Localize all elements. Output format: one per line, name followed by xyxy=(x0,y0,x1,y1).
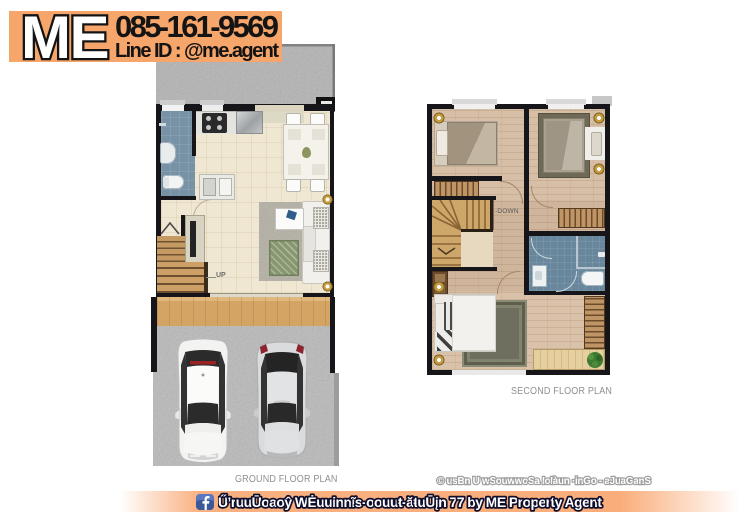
svg-text:Line ID : @me.agent: Line ID : @me.agent xyxy=(115,40,279,62)
svg-text:Ű’ruuŪoaoŷ WĖuuinnĩs-oouuŧ-ăŧu: Ű’ruuŪoaoŷ WĖuuinnĩs-oouuŧ-ăŧuŪįn 77 by … xyxy=(218,493,602,510)
svg-text:085-161-9569: 085-161-9569 xyxy=(115,13,279,41)
svg-text:ME: ME xyxy=(21,6,108,68)
svg-text:© usBn U wSouwwoSa IoIàun ·in: © usBn U wSouwwoSa IoIàun ·inGo - aJuaG… xyxy=(437,476,651,487)
